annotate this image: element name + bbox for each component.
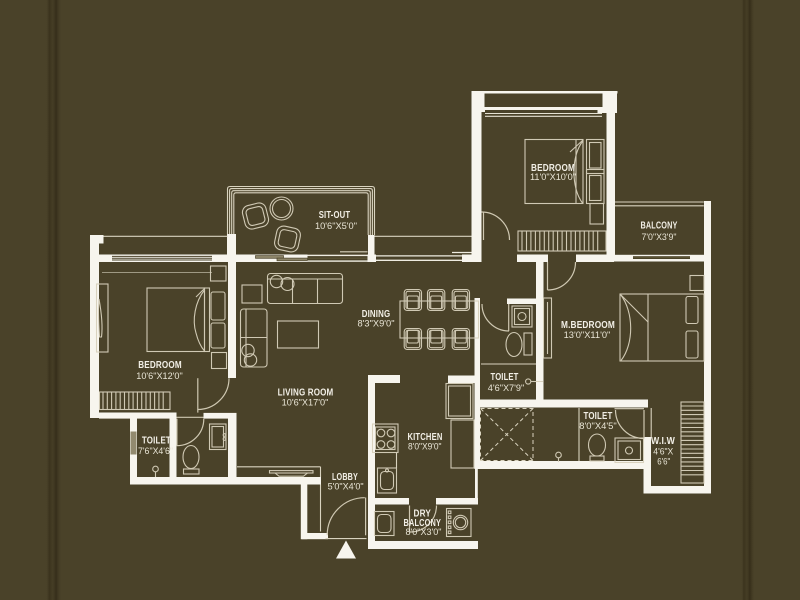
svg-text:13'0"X11'0": 13'0"X11'0" xyxy=(564,330,611,340)
svg-text:8'0"X9'0": 8'0"X9'0" xyxy=(408,442,442,452)
svg-text:BEDROOM: BEDROOM xyxy=(138,360,182,371)
svg-text:11'0"X10'0": 11'0"X10'0" xyxy=(530,172,576,182)
svg-text:TOILET: TOILET xyxy=(491,372,519,383)
svg-text:BALCONY: BALCONY xyxy=(641,221,678,232)
svg-text:10'6"X5'0": 10'6"X5'0" xyxy=(315,221,357,231)
svg-text:7'0"X3'9": 7'0"X3'9" xyxy=(642,232,677,242)
svg-text:6'6": 6'6" xyxy=(657,457,670,467)
svg-text:8'0"X4'5": 8'0"X4'5" xyxy=(579,421,617,431)
svg-text:5'0"X4'0": 5'0"X4'0" xyxy=(328,482,364,492)
svg-text:W.I.W: W.I.W xyxy=(651,436,675,447)
svg-text:10'6"X17'0": 10'6"X17'0" xyxy=(282,398,329,408)
svg-text:4'6"X: 4'6"X xyxy=(653,447,673,457)
svg-text:SIT-OUT: SIT-OUT xyxy=(319,210,351,221)
svg-text:7'6"X4'6": 7'6"X4'6" xyxy=(138,446,173,456)
svg-text:4'6"X7'9": 4'6"X7'9" xyxy=(488,383,525,393)
svg-text:8'0"X3'0": 8'0"X3'0" xyxy=(406,527,442,537)
svg-text:8'3"X9'0": 8'3"X9'0" xyxy=(358,319,395,329)
svg-text:10'6"X12'0": 10'6"X12'0" xyxy=(136,371,183,381)
